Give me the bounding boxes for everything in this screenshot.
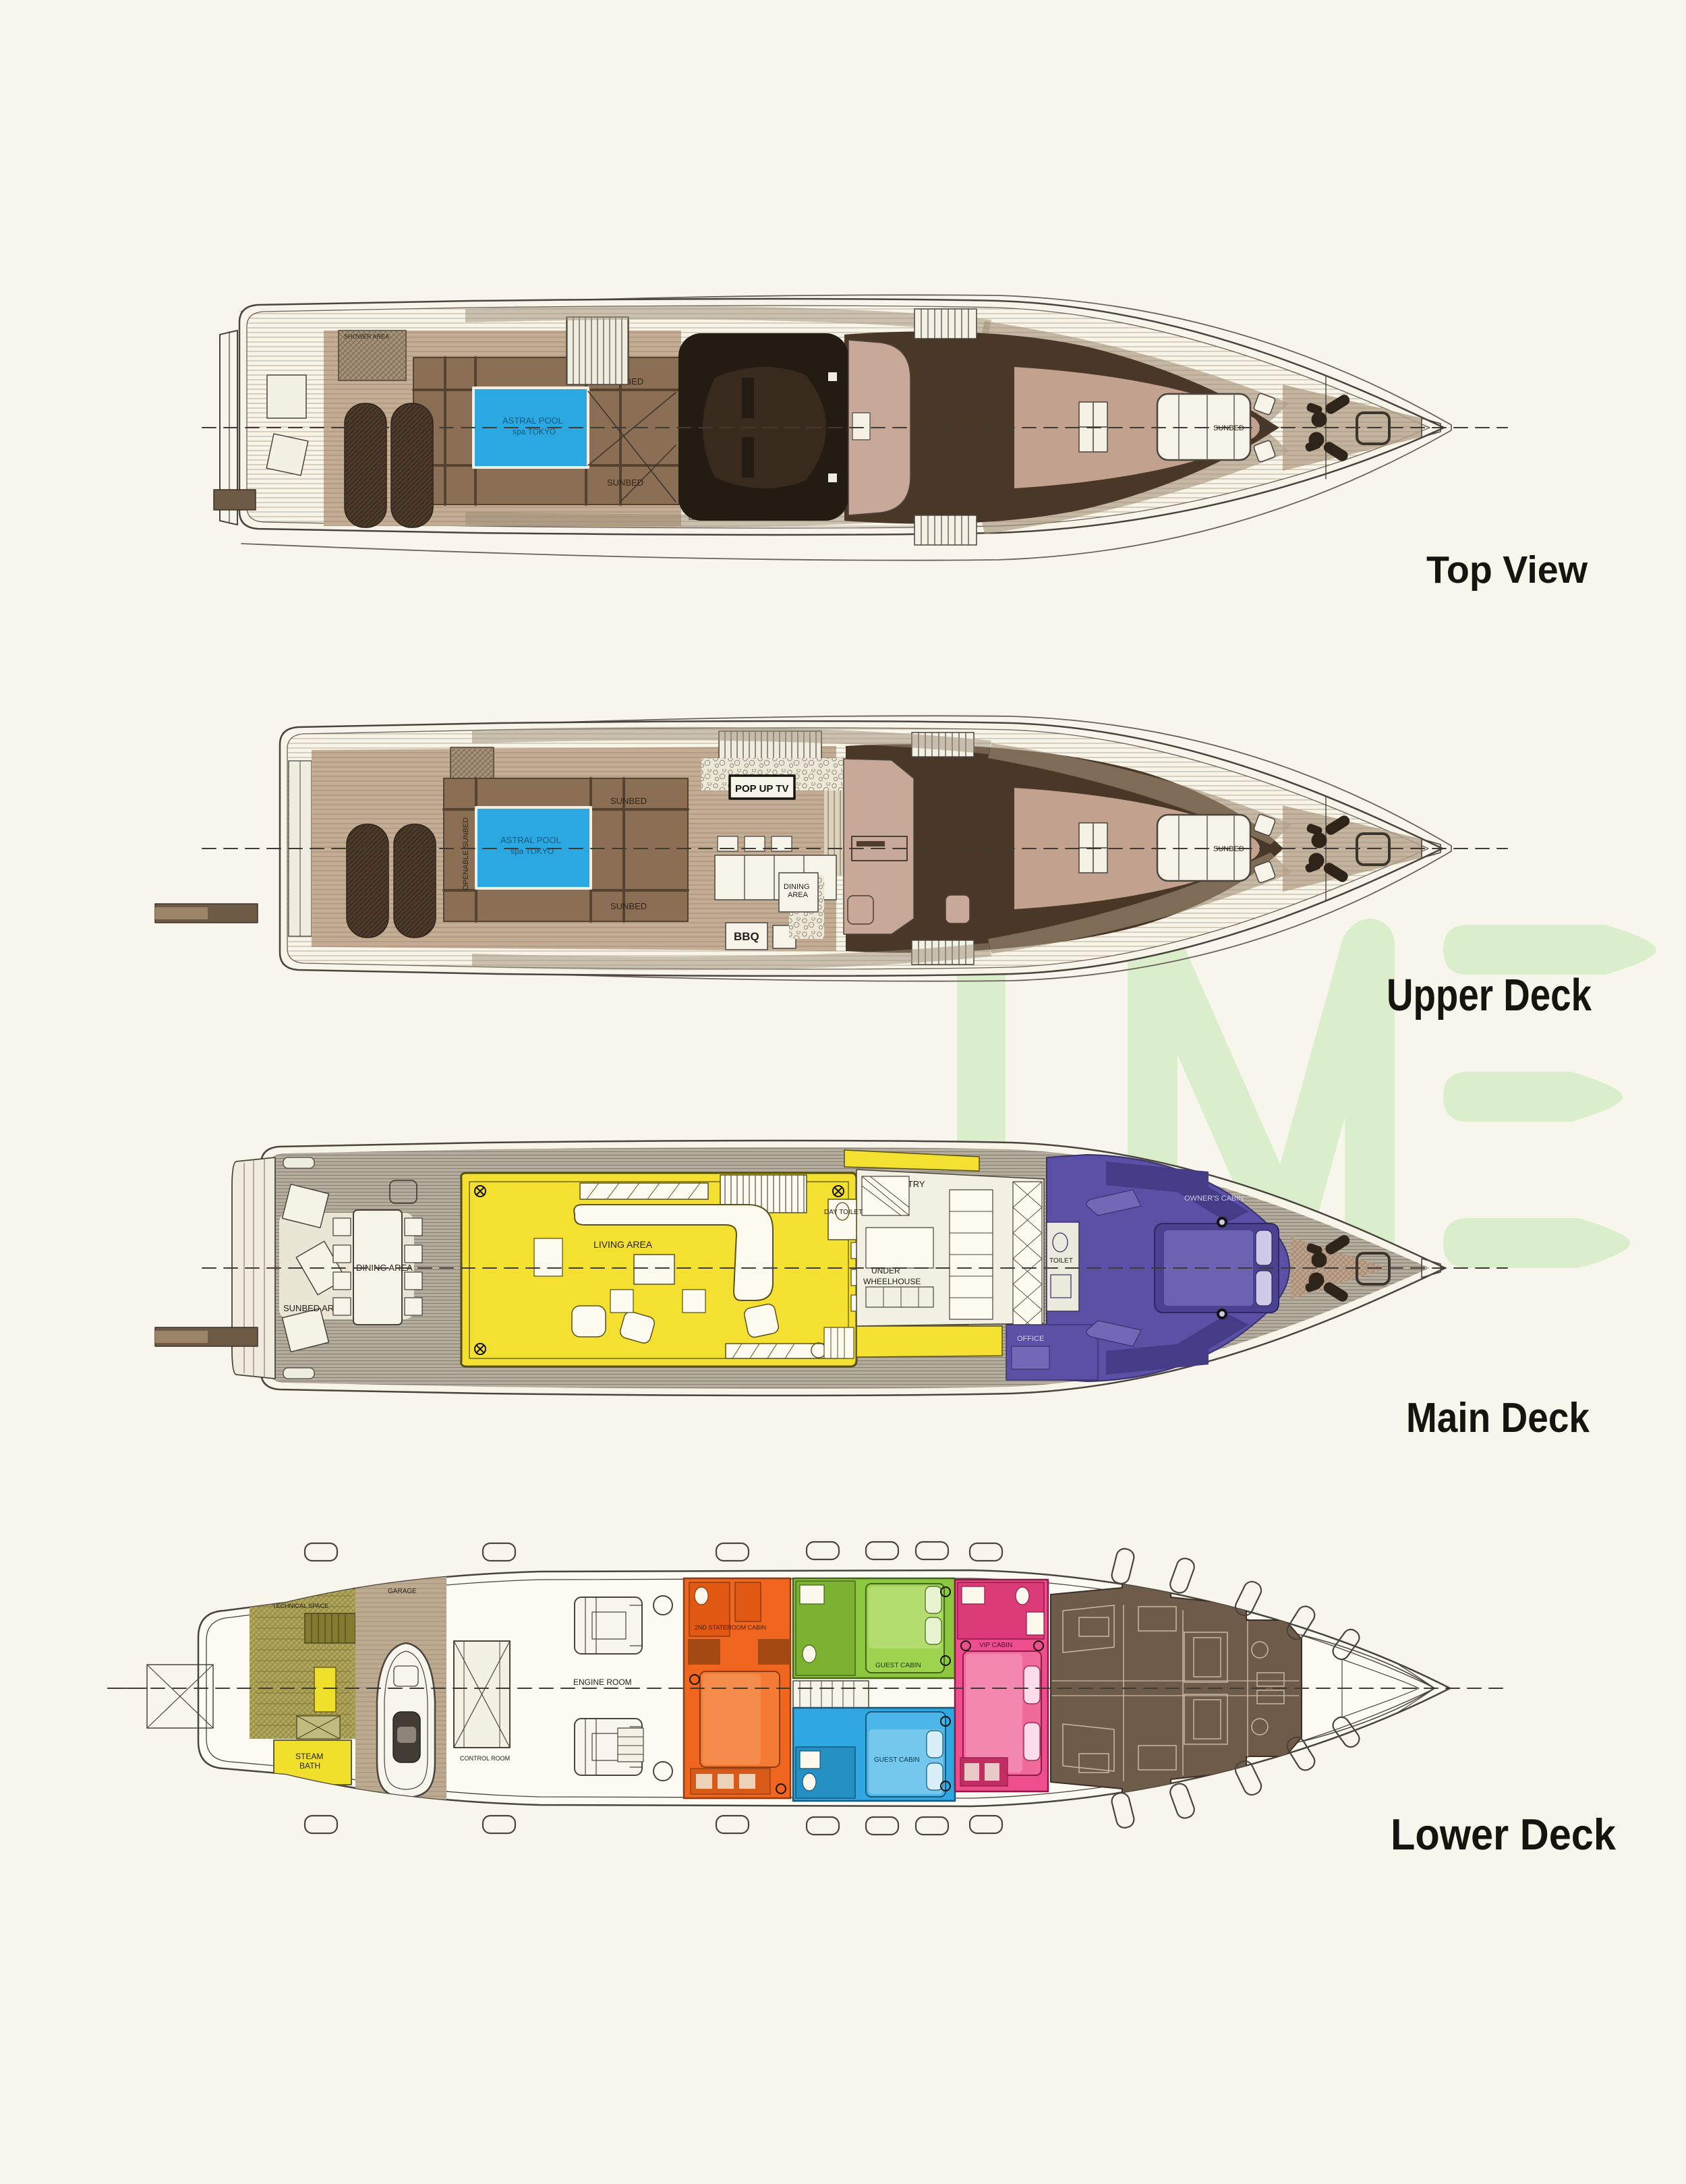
svg-text:AREA: AREA	[788, 891, 809, 899]
svg-text:Lower Deck: Lower Deck	[1391, 1810, 1617, 1859]
svg-text:POP UP TV: POP UP TV	[735, 783, 788, 795]
svg-text:OFFICE: OFFICE	[1017, 1335, 1044, 1343]
svg-text:BATH: BATH	[299, 1761, 320, 1771]
svg-text:Top View: Top View	[1426, 548, 1588, 592]
svg-text:CONTROL ROOM: CONTROL ROOM	[460, 1755, 510, 1762]
svg-text:TECHNICAL SPACE: TECHNICAL SPACE	[272, 1603, 328, 1609]
svg-text:GUEST CABIN: GUEST CABIN	[875, 1662, 921, 1669]
svg-text:BBQ: BBQ	[734, 930, 759, 943]
svg-text:SHOWER AREA: SHOWER AREA	[344, 333, 389, 340]
svg-text:VIP CABIN: VIP CABIN	[979, 1642, 1012, 1649]
svg-text:spa TOKYO: spa TOKYO	[513, 427, 556, 436]
svg-text:OPENABLE SUNBED: OPENABLE SUNBED	[462, 817, 470, 890]
svg-text:GARAGE: GARAGE	[388, 1588, 417, 1595]
svg-text:SUNBED: SUNBED	[610, 796, 647, 806]
svg-text:Upper Deck: Upper Deck	[1387, 970, 1592, 1021]
svg-text:ASTRAL POOL: ASTRAL POOL	[500, 835, 561, 845]
svg-text:SUNBED: SUNBED	[607, 478, 643, 488]
svg-text:WHEELHOUSE: WHEELHOUSE	[863, 1277, 921, 1286]
svg-text:ASTRAL POOL: ASTRAL POOL	[502, 415, 563, 426]
svg-text:DAY TOILET: DAY TOILET	[824, 1209, 863, 1216]
svg-text:SUNBED: SUNBED	[610, 901, 647, 911]
svg-text:Main Deck: Main Deck	[1406, 1395, 1590, 1441]
svg-text:2ND STATEROOM CABIN: 2ND STATEROOM CABIN	[695, 1624, 766, 1631]
svg-text:ENGINE ROOM: ENGINE ROOM	[573, 1677, 632, 1687]
svg-text:DINING: DINING	[784, 883, 810, 891]
svg-text:TOILET: TOILET	[1049, 1257, 1073, 1265]
svg-text:OWNER'S CABIN: OWNER'S CABIN	[1184, 1195, 1244, 1203]
svg-text:GUEST CABIN: GUEST CABIN	[874, 1756, 920, 1764]
svg-text:STEAM: STEAM	[295, 1752, 323, 1761]
svg-text:LIVING AREA: LIVING AREA	[593, 1239, 653, 1250]
